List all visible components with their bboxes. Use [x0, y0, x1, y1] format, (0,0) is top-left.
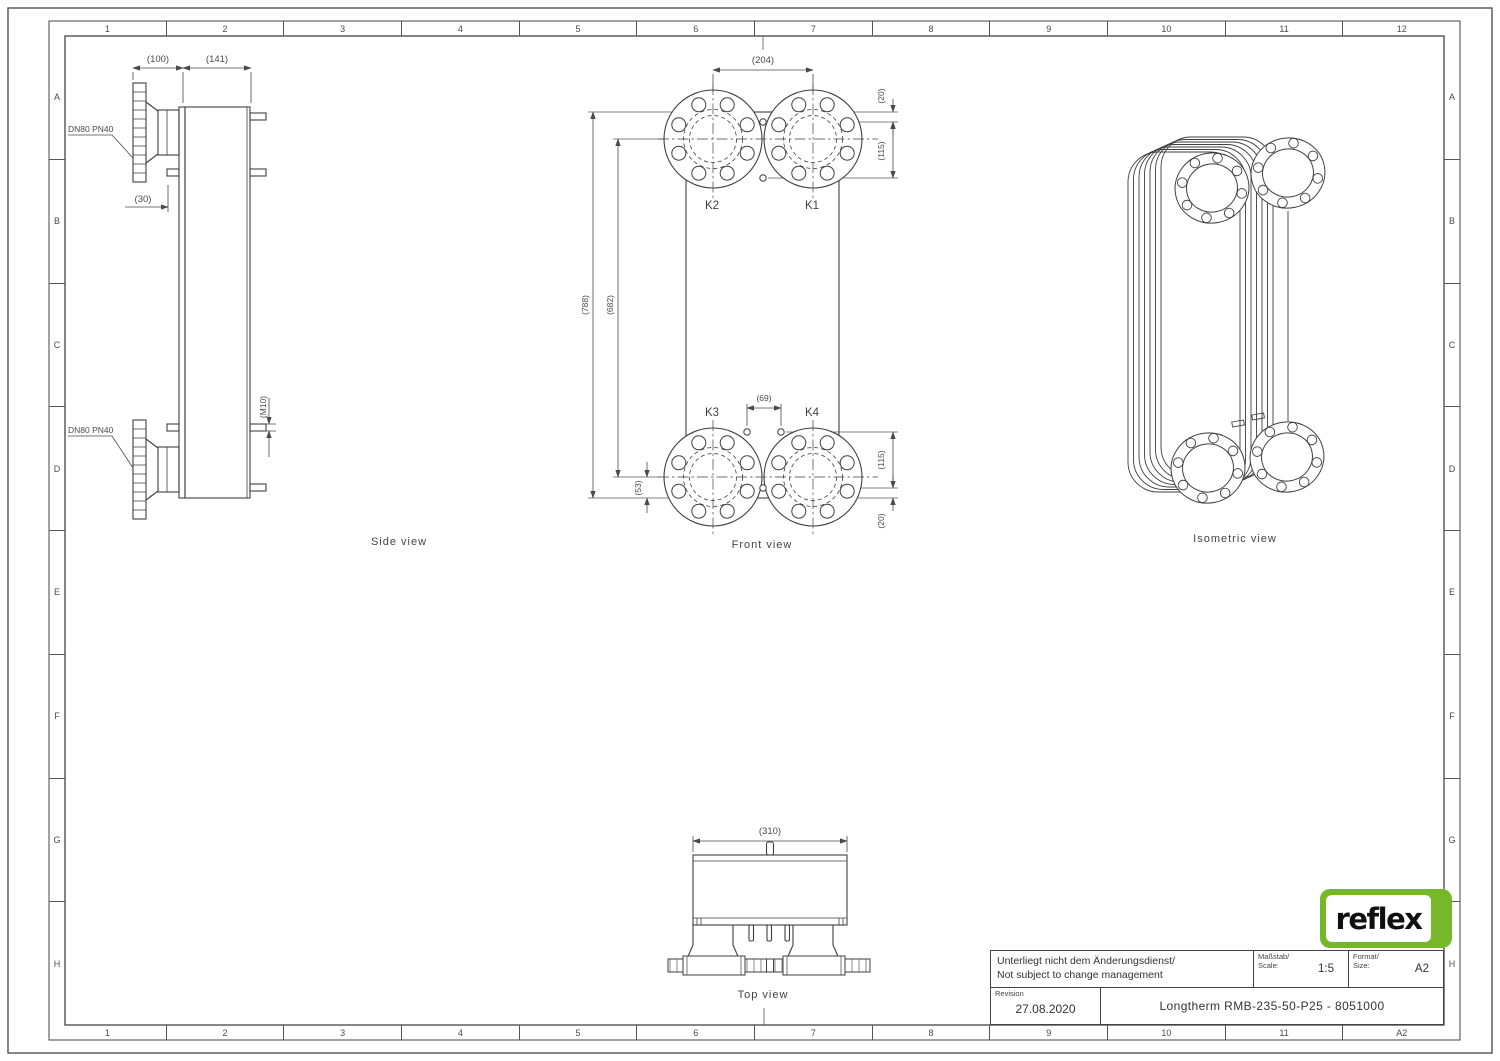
change-note-de: Unterliegt nicht dem Änderungsdienst/	[997, 954, 1247, 968]
ruler-label: 11	[1225, 1025, 1343, 1040]
ruler-label: 2	[166, 21, 284, 36]
drawing-canvas: (100) (141) (30) (M10) DN80 PN40 DN80 PN…	[0, 0, 1500, 1061]
ruler-top: 123456789101112	[49, 21, 1460, 36]
ruler-label: 7	[754, 21, 872, 36]
ruler-label: 12	[1342, 21, 1460, 36]
ruler-label: 3	[283, 21, 401, 36]
scale-value: 1:5	[1318, 963, 1334, 975]
dim-30-label: (30)	[135, 194, 152, 205]
isometric-view-label: Isometric view	[1193, 533, 1277, 545]
scale-cell: Maßstab/ Scale: 1:5	[1254, 951, 1349, 988]
isometric-view: Isometric view	[1128, 131, 1331, 545]
ruler-left: ABCDEFGH	[49, 36, 65, 1025]
ruler-label: F	[1444, 654, 1460, 778]
port-k2-label: K2	[705, 200, 719, 212]
ruler-label: 10	[1107, 21, 1225, 36]
dim-682-label: (682)	[605, 295, 615, 315]
ruler-label: 10	[1107, 1025, 1225, 1040]
ruler-label: 4	[401, 1025, 519, 1040]
ruler-label: H	[49, 901, 65, 1025]
dim-788-label: (788)	[580, 295, 590, 315]
revision-cell: Revision 27.08.2020	[991, 988, 1101, 1024]
ruler-label: C	[49, 283, 65, 407]
top-view: (310) Top view	[668, 826, 870, 1025]
ruler-label: G	[49, 778, 65, 902]
ruler-label: 5	[519, 1025, 637, 1040]
ruler-label: 8	[872, 1025, 990, 1040]
drawing-sheet: (100) (141) (30) (M10) DN80 PN40 DN80 PN…	[0, 0, 1500, 1061]
port-k3-label: K3	[705, 407, 719, 419]
ruler-label: 11	[1225, 21, 1343, 36]
ruler-label: 9	[989, 1025, 1107, 1040]
ruler-label: 5	[519, 21, 637, 36]
ruler-right: ABCDEFGH	[1444, 36, 1460, 1025]
dim-310-label: (310)	[759, 826, 781, 837]
ruler-label: B	[49, 159, 65, 283]
ruler-label: A	[49, 36, 65, 159]
ruler-label: 9	[989, 21, 1107, 36]
port-k4-label: K4	[805, 407, 820, 419]
ruler-label: 3	[283, 1025, 401, 1040]
ruler-label: G	[1444, 778, 1460, 902]
ruler-label: 7	[754, 1025, 872, 1040]
ruler-label: D	[49, 406, 65, 530]
side-view-label: Side view	[371, 536, 427, 548]
dim-115-top-label: (115)	[876, 141, 886, 160]
top-view-label: Top view	[738, 989, 789, 1001]
ruler-label: 4	[401, 21, 519, 36]
ruler-label: B	[1444, 159, 1460, 283]
ruler-label: 6	[636, 1025, 754, 1040]
dim-141-label: (141)	[206, 54, 228, 65]
format-value: A2	[1415, 963, 1429, 975]
dim-69-label: (69)	[756, 393, 771, 403]
title-block: Unterliegt nicht dem Änderungsdienst/ No…	[990, 950, 1444, 1025]
front-view-label: Front view	[732, 539, 793, 551]
reflex-logo-text: reflex	[1336, 902, 1422, 936]
change-note-en: Not subject to change management	[997, 968, 1247, 982]
ruler-label: E	[1444, 530, 1460, 654]
dim-m10-label: (M10)	[258, 396, 268, 418]
ruler-bottom: 1234567891011A2	[49, 1025, 1460, 1040]
format-cell: Format/ Size: A2	[1349, 951, 1443, 988]
revision-value: 27.08.2020	[991, 1002, 1100, 1016]
front-view: (204) (20) (115) (788) (682) (69) (53) (…	[580, 36, 898, 551]
format-label: Format/ Size:	[1353, 953, 1379, 970]
ruler-label: 1	[49, 21, 166, 36]
dim-100-label: (100)	[147, 54, 169, 65]
scale-label: Maßstab/ Scale:	[1258, 953, 1289, 970]
reflex-logo-inner: reflex	[1326, 895, 1431, 942]
dim-20-top-label: (20)	[876, 88, 886, 103]
port-k1-label: K1	[805, 200, 819, 212]
drawing-title: Longtherm RMB-235-50-P25 - 8051000	[1101, 988, 1443, 1024]
reflex-logo: reflex	[1320, 889, 1452, 948]
dim-115-bottom-label: (115)	[876, 450, 886, 469]
ruler-label: 8	[872, 21, 990, 36]
ruler-label: C	[1444, 283, 1460, 407]
side-view: (100) (141) (30) (M10) DN80 PN40 DN80 PN…	[68, 54, 427, 548]
change-note-cell: Unterliegt nicht dem Änderungsdienst/ No…	[991, 951, 1254, 988]
ruler-label: F	[49, 654, 65, 778]
ruler-label: 2	[166, 1025, 284, 1040]
ruler-label: D	[1444, 406, 1460, 530]
revision-label: Revision	[995, 990, 1024, 999]
flange-callout-bottom: DN80 PN40	[68, 425, 114, 435]
dim-53-label: (53)	[633, 480, 643, 495]
ruler-label: A	[1444, 36, 1460, 159]
ruler-label: 1	[49, 1025, 166, 1040]
dim-204-label: (204)	[752, 55, 774, 66]
dim-20-bottom-label: (20)	[876, 513, 886, 528]
ruler-label: E	[49, 530, 65, 654]
flange-callout-top: DN80 PN40	[68, 124, 114, 134]
ruler-label: 6	[636, 21, 754, 36]
ruler-label: A2	[1342, 1025, 1460, 1040]
